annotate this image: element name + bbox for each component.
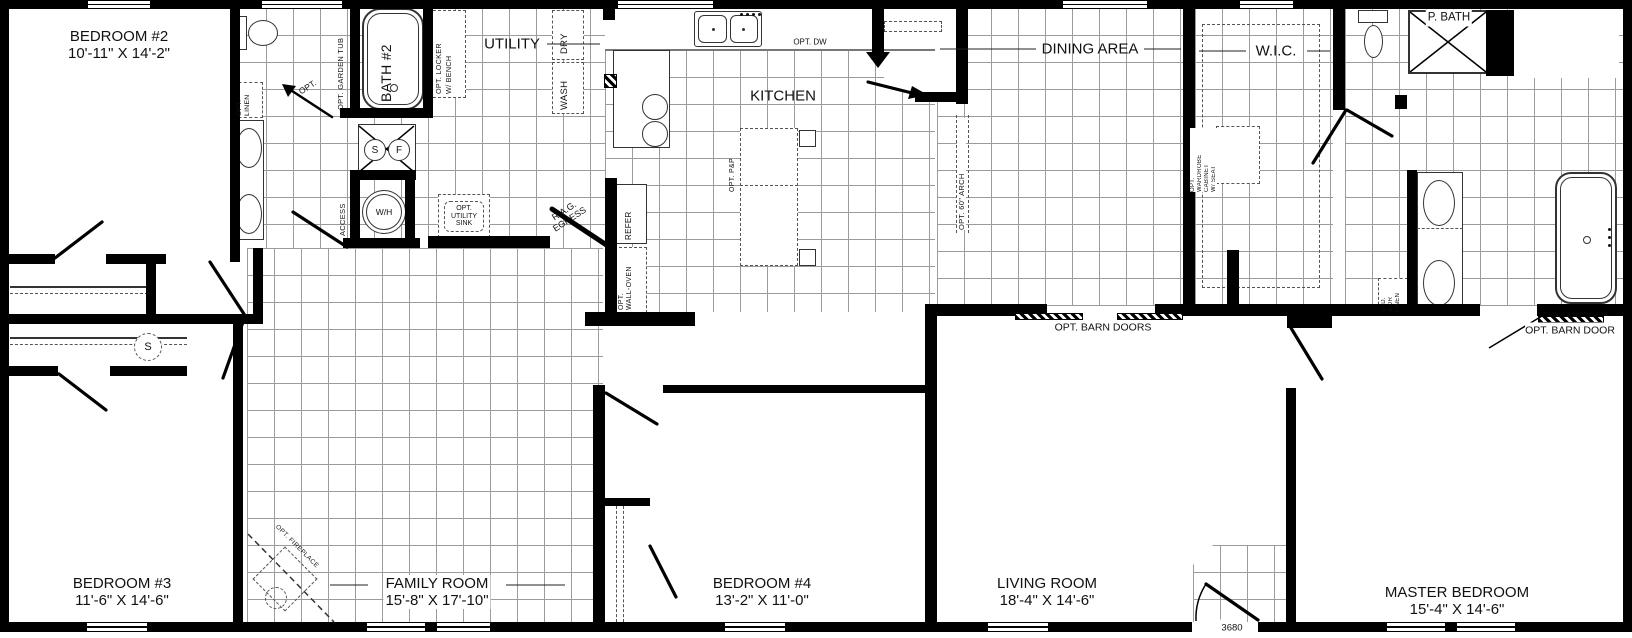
faucet-dot — [712, 28, 715, 31]
annotation-line: W/ SEAT — [1211, 128, 1217, 192]
room-dims: 13'-2" X 11'-0" — [713, 592, 811, 609]
window — [1240, 0, 1293, 9]
toilet-tank — [1358, 10, 1388, 23]
room-name: BEDROOM #4 — [713, 575, 811, 592]
wall — [350, 0, 360, 112]
shelf-circle: S — [134, 333, 162, 361]
annotation-line: OPT. — [1190, 128, 1196, 192]
room-label-wic: W.I.C. — [1256, 43, 1297, 60]
shelf-letter: S — [372, 145, 379, 156]
room-dims: 15'-8" X 17'-10" — [385, 592, 488, 609]
room-label-utility: UTILITY — [484, 36, 540, 53]
shelf-letter: S — [144, 341, 151, 353]
annotation-line: DRY — [559, 16, 570, 54]
wall — [405, 180, 415, 240]
faucet-dot — [758, 13, 761, 16]
wall — [1537, 304, 1632, 316]
refer-label: REFER — [624, 188, 633, 240]
wall — [253, 248, 263, 318]
room-name: W.I.C. — [1256, 43, 1297, 60]
room-label-master: MASTER BEDROOM 15'-4" X 14'-6" — [1385, 584, 1529, 618]
annotation-line: WARDROBE — [1197, 128, 1203, 192]
wall-exterior-right — [1623, 0, 1632, 632]
toilet-bowl — [248, 20, 278, 46]
room-label-kitchen: KITCHEN — [750, 88, 816, 105]
vanity-divider — [1417, 228, 1463, 229]
wall — [1395, 95, 1407, 109]
wall — [925, 304, 937, 622]
opt-garden-tub-label: OPT. GARDEN TUB — [336, 44, 345, 110]
faucet-dot — [740, 13, 743, 16]
annotation-line: WALL-OVEN — [626, 250, 633, 310]
room-label-bedroom4: BEDROOM #4 13'-2" X 11'-0" — [713, 575, 811, 609]
std-3dr-linen-label: STD. 3-DR LINEN — [1381, 280, 1401, 312]
opt-dw-label: OPT. DW — [793, 34, 826, 51]
room-dims: 15'-4" X 14'-6" — [1385, 601, 1529, 618]
wall — [1286, 388, 1296, 622]
room-label-living: LIVING ROOM 18'-4" X 14'-6" — [997, 575, 1097, 609]
wall — [1227, 250, 1239, 310]
pbath-corner-area — [1514, 8, 1619, 78]
window — [367, 622, 425, 632]
access-label: ACCESS — [338, 190, 347, 236]
wall — [423, 0, 433, 118]
window — [87, 622, 147, 632]
faucet-dot — [742, 28, 745, 31]
opt-arch-line — [968, 115, 969, 233]
window — [437, 622, 490, 632]
burner — [642, 121, 668, 147]
wall — [428, 236, 550, 248]
room-name: BEDROOM #3 — [73, 575, 171, 592]
wall — [1287, 316, 1332, 328]
wall-hatch — [604, 74, 617, 88]
window — [988, 622, 1048, 632]
room-name: LIVING ROOM — [997, 575, 1097, 592]
opt-utility-sink-label: OPT. UTILITY SINK — [451, 205, 477, 228]
wall — [230, 0, 240, 262]
opt-barn-door-label: OPT. BARN DOOR — [1525, 323, 1615, 340]
window — [1457, 622, 1515, 632]
room-name: UTILITY — [484, 36, 540, 53]
opt-barn-doors-label: OPT. BARN DOORS — [1055, 320, 1152, 337]
wall — [872, 8, 884, 54]
annotation-line: STD. — [1381, 280, 1387, 312]
wall — [110, 366, 187, 376]
window — [1387, 622, 1445, 632]
annotation-line: OPT. GARDEN TUB — [336, 44, 345, 110]
faucet-dot — [1608, 236, 1611, 239]
water-heater-label: W/H — [376, 207, 393, 217]
annotation-line: LINEN — [1395, 280, 1401, 312]
burner — [642, 94, 668, 120]
wall — [106, 254, 166, 264]
wall — [1407, 170, 1417, 312]
room-label-family: FAMILY ROOM 15'-8" X 17'-10" — [383, 575, 490, 609]
room-dims: 11'-6" X 14'-6" — [73, 592, 171, 609]
wall — [1333, 8, 1345, 110]
room-label-pbath: P. BATH — [1426, 10, 1472, 27]
closet-shelf — [10, 337, 187, 339]
closet-rod — [10, 293, 148, 294]
sink — [1423, 180, 1455, 226]
annotation-line: LINEN — [244, 84, 251, 116]
faucet-dot — [752, 13, 755, 16]
opt-wall-oven-label: OPT. WALL-OVEN — [618, 250, 633, 310]
wall — [0, 314, 263, 324]
room-label-bedroom2: BEDROOM #2 10'-11" X 14'-2" — [68, 28, 170, 62]
wall — [956, 8, 968, 104]
faucet-dot — [746, 13, 749, 16]
opt-60-arch-label: OPT. 60" ARCH — [957, 118, 966, 230]
room-name: MASTER BEDROOM — [1385, 584, 1529, 601]
room-name: BEDROOM #2 — [68, 28, 170, 45]
wall — [350, 170, 416, 180]
annotation-line: 3-DR — [1388, 280, 1394, 312]
annotation-line: OPT. — [451, 205, 477, 213]
room-dims: 10'-11" X 14'-2" — [68, 45, 170, 62]
annotation-line: OPT. — [618, 250, 625, 310]
wall — [350, 180, 360, 240]
island-divider — [740, 185, 798, 186]
island-post — [799, 130, 816, 147]
room-label-dining: DINING AREA — [1042, 41, 1139, 58]
tub-drain — [1583, 236, 1591, 244]
annotation-line: W/ BENCH — [444, 14, 453, 94]
kitchen-island — [740, 128, 798, 266]
opt-wardrobe-label: OPT. WARDROBE CABINET W/ SEAT — [1190, 128, 1217, 192]
window — [1063, 0, 1147, 9]
window — [88, 0, 150, 9]
annotation-line: CABINET — [1204, 128, 1210, 192]
wall — [233, 324, 243, 622]
wall — [0, 254, 55, 264]
floor-plan: S F W/H S — [0, 0, 1632, 638]
opt-locker-label: OPT. LOCKER W/ BENCH — [434, 14, 453, 94]
opt-pp-label: OPT. P&P — [729, 136, 736, 192]
entry-door-size-label: 3680 — [1217, 620, 1246, 637]
washer-label: WASH — [559, 66, 570, 110]
room-label-bedroom3: BEDROOM #3 11'-6" X 14'-6" — [73, 575, 171, 609]
faucet-dot — [1608, 244, 1611, 247]
window — [725, 622, 785, 632]
room-dims: 18'-4" X 14'-6" — [997, 592, 1097, 609]
annotation-line: ACCESS — [338, 190, 347, 236]
island-post — [799, 249, 816, 266]
closet-door-line — [616, 506, 617, 622]
pantry-cabinet — [884, 21, 942, 32]
window — [262, 0, 342, 9]
annotation-line: OPT. — [236, 84, 243, 116]
annotation-line: REFER — [624, 188, 633, 240]
annotation-line: OPT. P&P — [729, 136, 736, 192]
wall — [598, 498, 650, 506]
sink — [1423, 260, 1455, 306]
furnace-letter: F — [396, 145, 402, 156]
wall — [146, 264, 156, 316]
window — [618, 0, 713, 9]
room-name: DINING AREA — [1042, 41, 1139, 58]
room-name: P. BATH — [1428, 10, 1470, 27]
wall — [340, 108, 433, 118]
wall — [343, 238, 420, 248]
toilet-bowl — [1364, 25, 1383, 58]
room-name: KITCHEN — [750, 88, 816, 105]
wall-exterior-top — [0, 0, 1632, 9]
floor-tile-entry — [1193, 545, 1287, 622]
annotation-line: SINK — [451, 220, 477, 228]
faucet-dot — [1608, 228, 1611, 231]
wall — [585, 312, 695, 326]
closet-shelf — [10, 286, 148, 288]
bath2-label: BATH #2 — [378, 18, 394, 102]
chase-column — [1486, 10, 1514, 76]
wall — [663, 385, 937, 393]
opt-wardrobe-cabinet — [1216, 126, 1260, 184]
opt-linen-label: OPT. LINEN — [236, 84, 251, 116]
water-heater-inner: W/H — [366, 194, 402, 230]
furnace-circle: F — [388, 139, 410, 161]
room-name: FAMILY ROOM — [385, 575, 488, 592]
annotation-line: WASH — [559, 66, 570, 110]
shelf-circle: S — [364, 139, 386, 161]
wall — [1155, 304, 1480, 316]
annotation-line: OPT. 60" ARCH — [957, 118, 966, 230]
room-name: BATH #2 — [378, 18, 394, 102]
wall — [605, 178, 617, 312]
wall — [0, 366, 58, 376]
dryer-label: DRY — [559, 16, 570, 54]
wall — [603, 0, 615, 20]
closet-door-line — [623, 506, 624, 622]
annotation-line: UTILITY — [451, 212, 477, 220]
annotation-line: OPT. LOCKER — [434, 14, 443, 94]
